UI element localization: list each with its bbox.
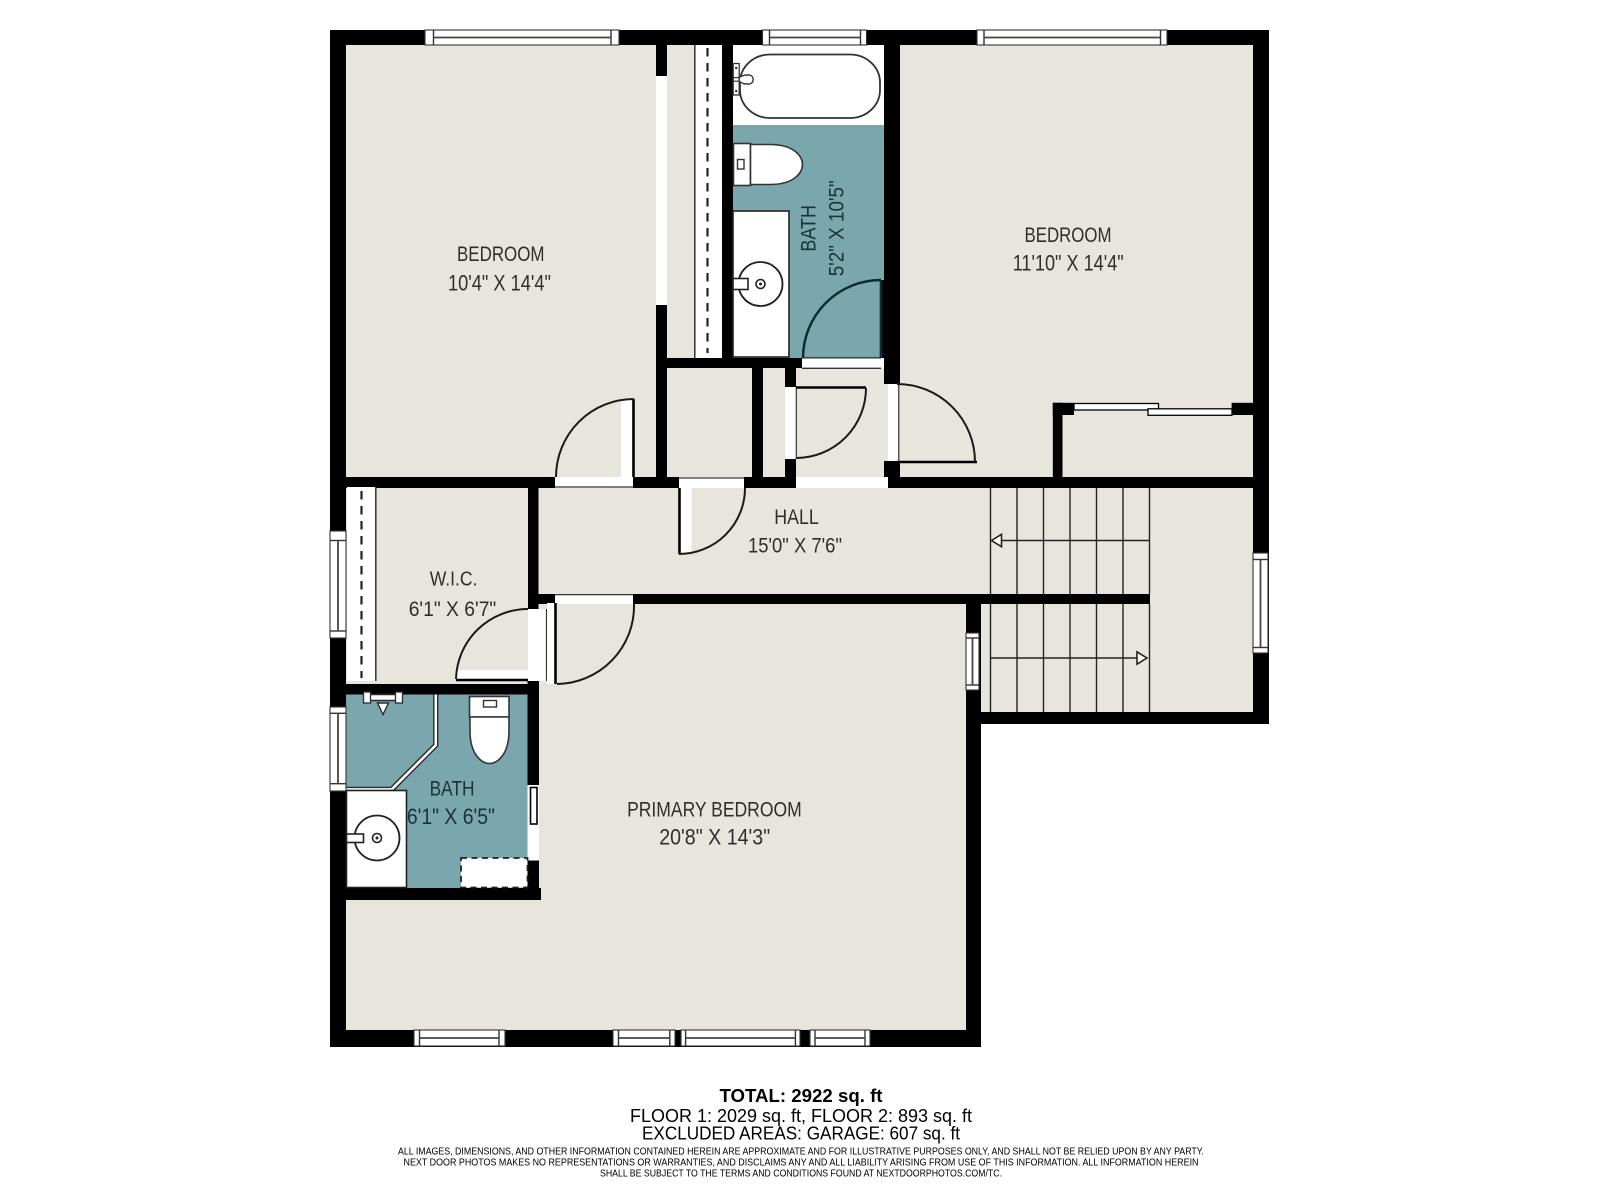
svg-text:15'0" X 7'6": 15'0" X 7'6" [748,534,842,558]
svg-text:6'1" X 6'5": 6'1" X 6'5" [407,804,495,829]
svg-text:PRIMARY BEDROOM: PRIMARY BEDROOM [627,799,802,822]
svg-text:BEDROOM: BEDROOM [1025,224,1112,247]
svg-text:W.I.C.: W.I.C. [430,568,478,590]
svg-text:ALL IMAGES, DIMENSIONS, AND OT: ALL IMAGES, DIMENSIONS, AND OTHER INFORM… [398,1147,1204,1158]
svg-text:EXCLUDED AREAS: GARAGE: 607 sq: EXCLUDED AREAS: GARAGE: 607 sq. ft [642,1124,960,1144]
svg-text:5'2" X 10'5": 5'2" X 10'5" [824,180,848,276]
svg-text:BEDROOM: BEDROOM [457,243,545,266]
svg-text:NEXT DOOR PHOTOS MAKES NO REPR: NEXT DOOR PHOTOS MAKES NO REPRESENTATION… [404,1158,1199,1169]
svg-text:TOTAL: 2922 sq. ft: TOTAL: 2922 sq. ft [720,1086,883,1106]
svg-text:BATH: BATH [798,205,821,252]
svg-text:20'8" X 14'3": 20'8" X 14'3" [659,825,770,850]
svg-text:BATH: BATH [430,778,475,801]
svg-text:11'10" X 14'4": 11'10" X 14'4" [1013,251,1124,276]
svg-text:6'1" X 6'7": 6'1" X 6'7" [409,597,497,621]
svg-text:10'4" X 14'4": 10'4" X 14'4" [448,271,551,296]
svg-text:HALL: HALL [774,506,819,529]
svg-text:SHALL BE SUBJECT TO THE TERMS: SHALL BE SUBJECT TO THE TERMS AND CONDIT… [600,1169,1002,1180]
